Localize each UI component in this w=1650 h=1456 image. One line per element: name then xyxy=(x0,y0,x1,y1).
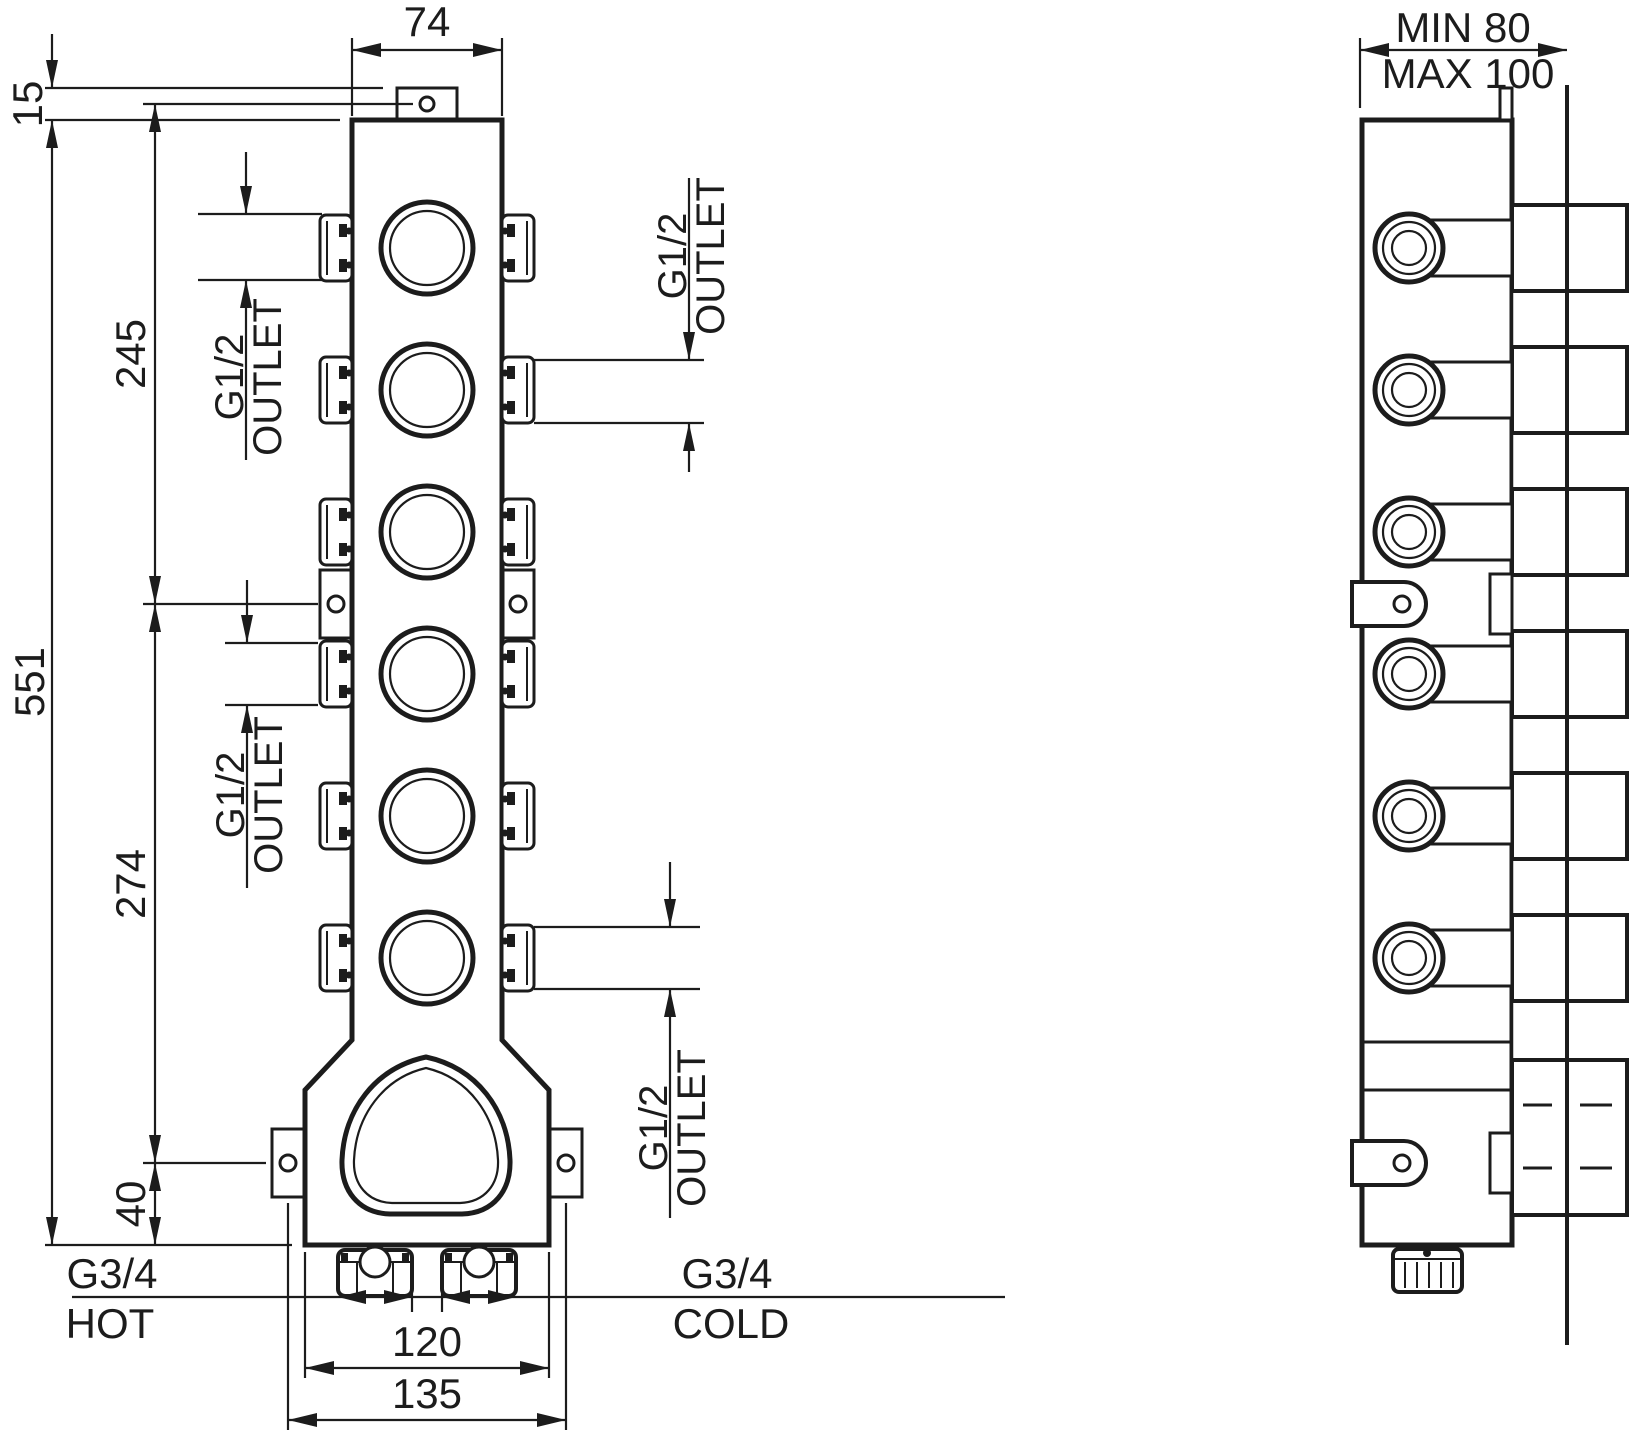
dim-551-label: 551 xyxy=(6,647,53,717)
bottom-mounting-tab-right xyxy=(550,1129,582,1197)
mid-bracket-plate xyxy=(1490,574,1512,634)
dim-74-label: 74 xyxy=(404,0,451,45)
trim-block-6 xyxy=(1512,915,1627,1001)
dim-245-label: 245 xyxy=(107,319,154,389)
side-inlet-fitting xyxy=(1393,1249,1462,1292)
side-port-1 xyxy=(1375,214,1512,282)
drawing-sheet: 74 15 245 551 274 40 120 135 G1/2 OUTLET… xyxy=(0,0,1650,1456)
trim-block-1 xyxy=(1512,205,1627,291)
inlet-cold-fitting xyxy=(442,1247,516,1296)
bottom-bracket-plate xyxy=(1490,1133,1512,1193)
inlet-hot-label: HOT xyxy=(66,1300,155,1347)
outlet-word-c: OUTLET xyxy=(247,716,291,874)
front-view xyxy=(272,88,582,1296)
dim-135-label: 135 xyxy=(392,1370,462,1417)
dim-15-label: 15 xyxy=(4,81,51,128)
bottom-mounting-tab-left xyxy=(272,1129,304,1197)
outlet-hex-left-1 xyxy=(320,215,353,281)
outlet-hex-left-3 xyxy=(320,499,353,565)
side-port-3 xyxy=(1375,498,1512,566)
side-port-4 xyxy=(1375,640,1512,708)
side-port-6 xyxy=(1375,924,1512,992)
outlet-word-d: OUTLET xyxy=(670,1049,714,1207)
trim-block-2 xyxy=(1512,347,1627,433)
technical-drawing: 74 15 245 551 274 40 120 135 G1/2 OUTLET… xyxy=(0,0,1650,1456)
dim-min-label: MIN 80 xyxy=(1395,4,1530,51)
side-port-2 xyxy=(1375,356,1512,424)
side-port-5 xyxy=(1375,782,1512,850)
dim-40-label: 40 xyxy=(107,1181,154,1228)
trim-block-5 xyxy=(1512,773,1627,859)
top-screw-hole xyxy=(420,97,434,111)
dim-max-label: MAX 100 xyxy=(1382,50,1555,97)
side-mid-lug xyxy=(1352,582,1426,626)
inlet-cold-label: COLD xyxy=(673,1300,790,1347)
outlet-hex-left-2 xyxy=(320,357,353,423)
inlet-thread-hot: G3/4 xyxy=(66,1250,157,1297)
outlet-hex-right-6 xyxy=(502,925,535,991)
outlet-hex-left-6 xyxy=(320,925,353,991)
outlet-hex-left-5 xyxy=(320,783,353,849)
outlet-word-a: OUTLET xyxy=(246,298,290,456)
outlet-hex-left-4 xyxy=(320,641,353,707)
side-bottom-lug xyxy=(1352,1141,1426,1185)
outlet-hex-right-3 xyxy=(502,499,535,565)
outlet-hex-right-2 xyxy=(502,357,535,423)
mid-mounting-tab-left xyxy=(320,570,352,638)
dim-274-label: 274 xyxy=(107,849,154,919)
dim-120-label: 120 xyxy=(392,1318,462,1365)
inlet-hot-fitting xyxy=(338,1247,412,1296)
outlet-hex-right-5 xyxy=(502,783,535,849)
trim-block-3 xyxy=(1512,489,1627,575)
outlet-word-b: OUTLET xyxy=(689,177,733,335)
outlet-hex-right-4 xyxy=(502,641,535,707)
bottom-trim-block xyxy=(1512,1060,1627,1215)
inlet-thread-cold: G3/4 xyxy=(681,1250,772,1297)
side-view xyxy=(1352,85,1627,1345)
outlet-hex-right-1 xyxy=(502,215,535,281)
mid-mounting-tab-right xyxy=(502,570,534,638)
trim-block-4 xyxy=(1512,631,1627,717)
